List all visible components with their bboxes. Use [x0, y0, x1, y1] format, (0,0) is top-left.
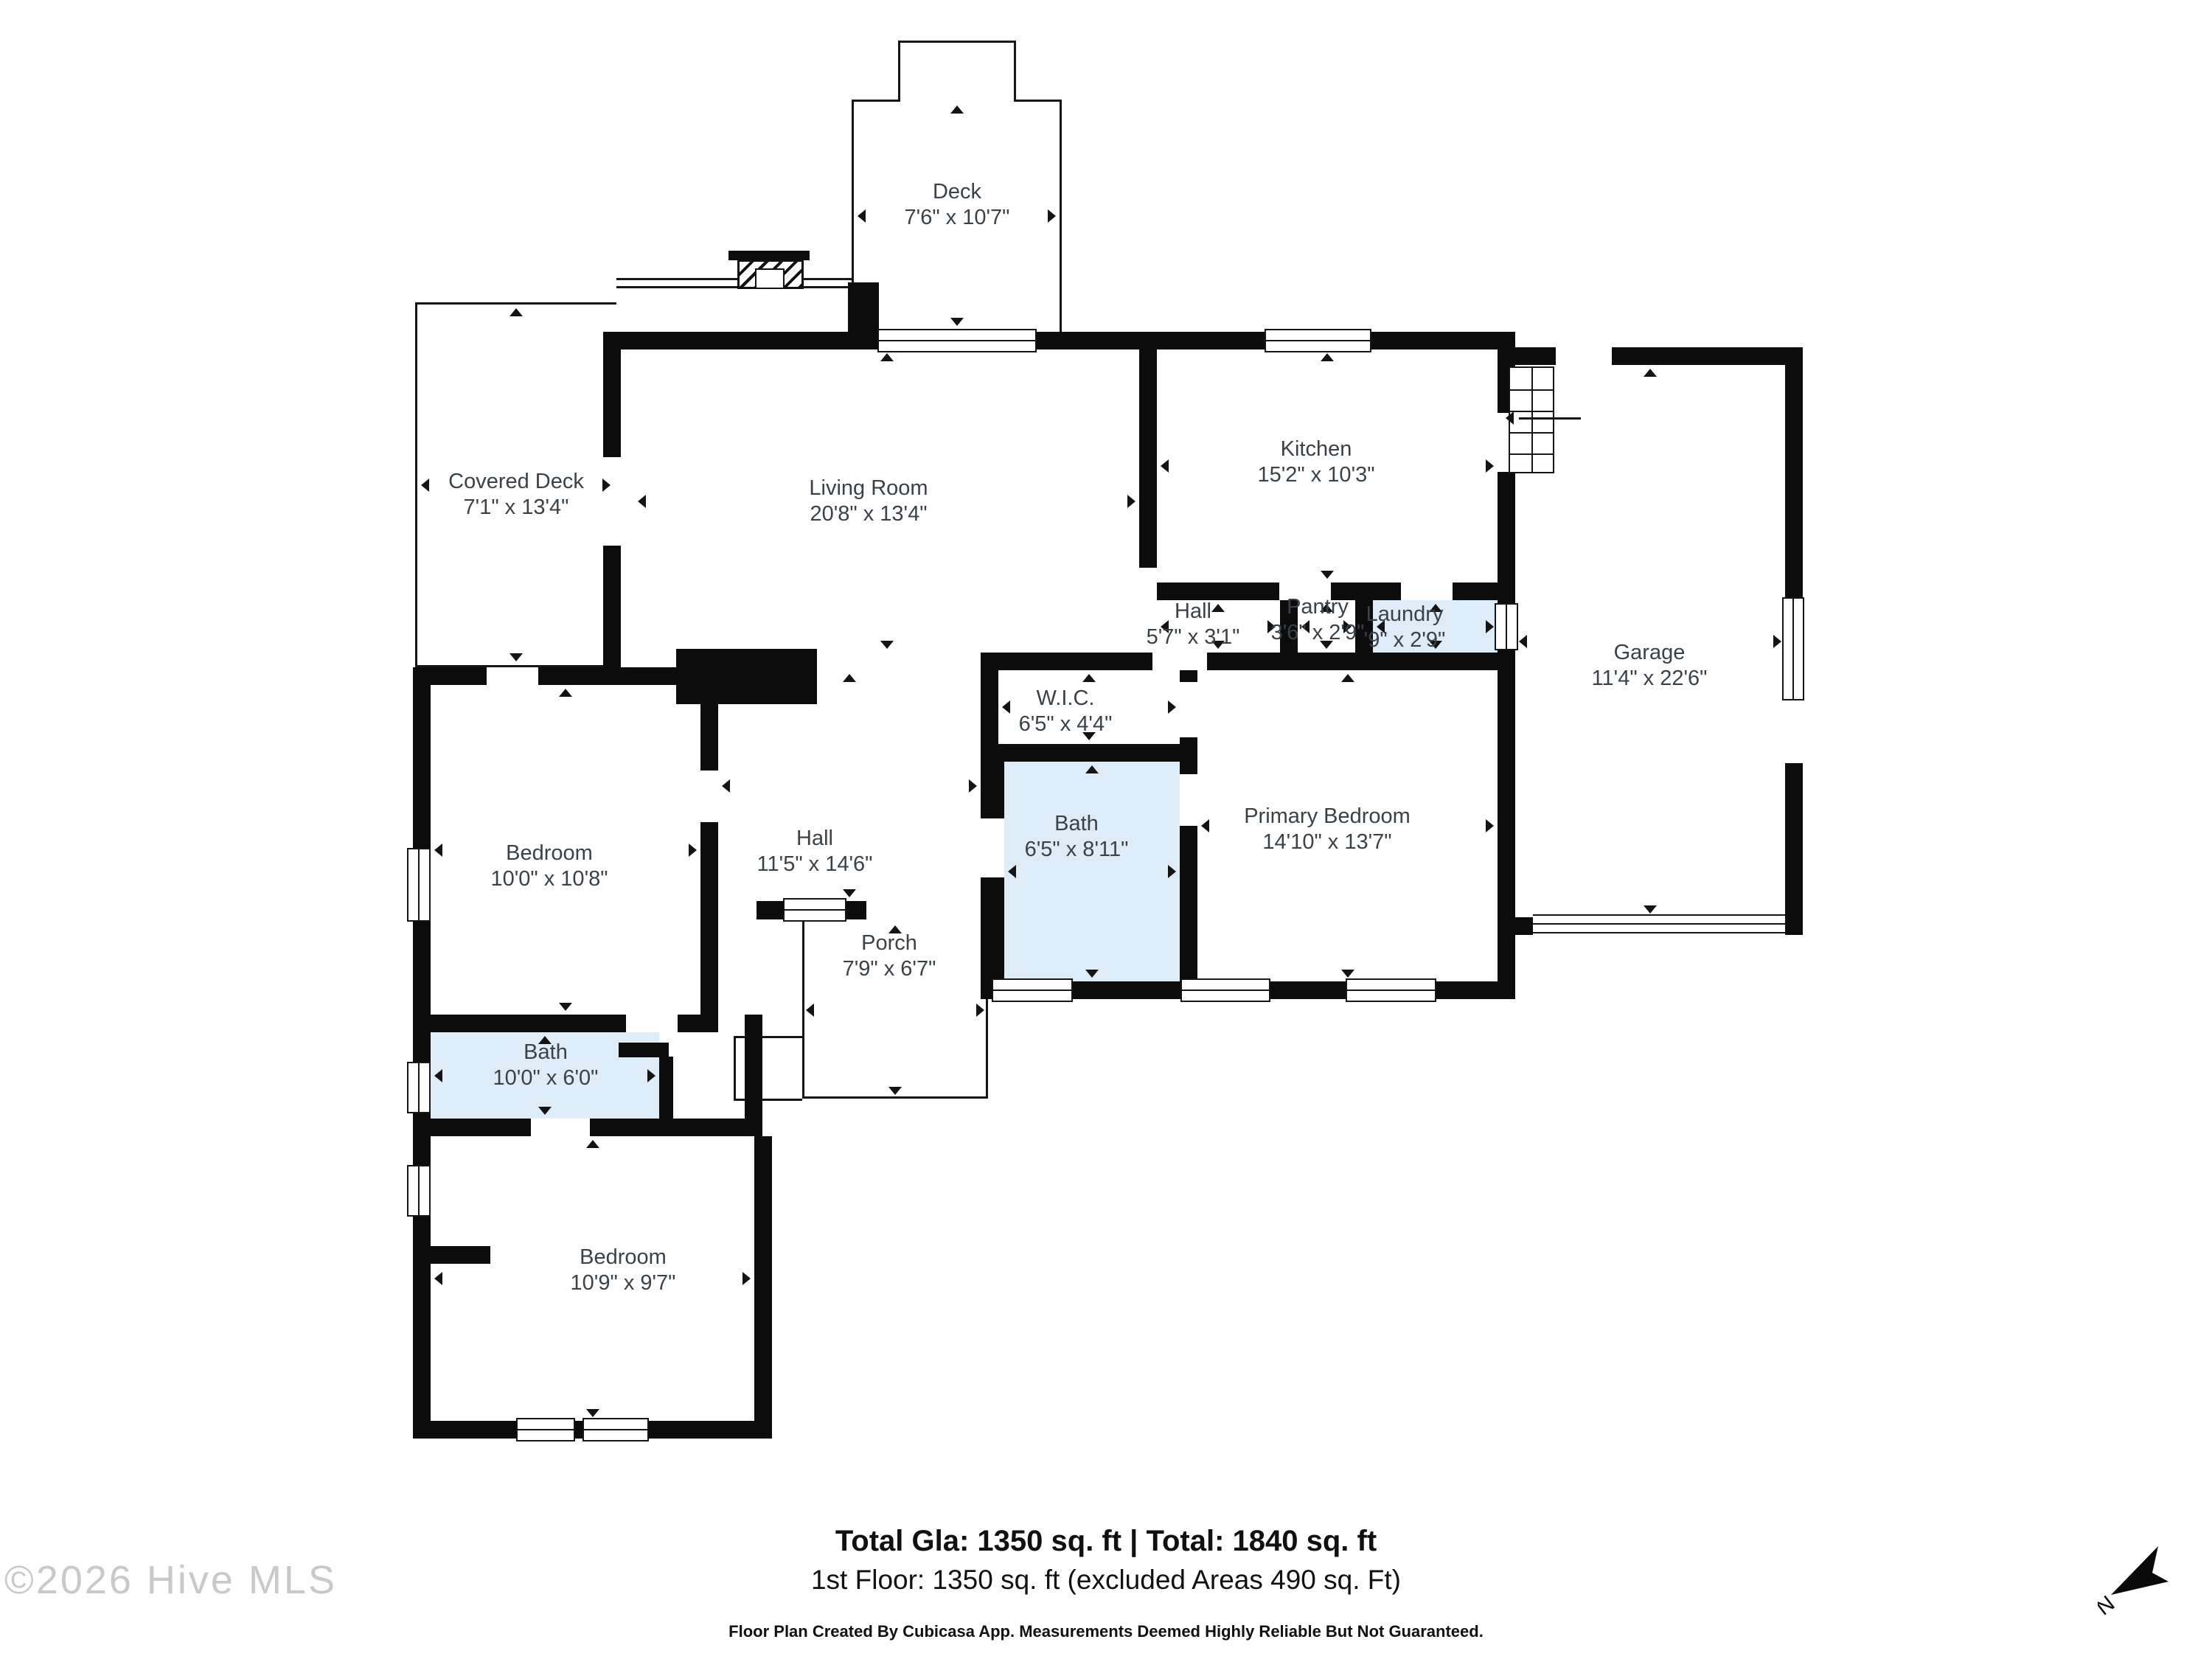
mls-watermark: ©2026 Hive MLS	[4, 1557, 337, 1603]
measure-arrow-down	[1644, 905, 1657, 914]
stair-rail	[1531, 368, 1533, 472]
measure-arrow-down	[888, 1087, 902, 1095]
room-dims: 11'4" x 22'6"	[1592, 666, 1708, 692]
window-glass-line	[584, 1429, 647, 1430]
room-label-bedroom-bottom: Bedroom 10'9" x 9'7"	[571, 1245, 676, 1296]
garage-side-window	[1782, 597, 1804, 700]
wall-segment	[413, 1119, 531, 1136]
room-dims: 7'6" x 10'7"	[905, 205, 1010, 231]
floor-plan-canvas: Deck 7'6" x 10'7" Covered Deck 7'1" x 13…	[0, 0, 2212, 1659]
wall-segment	[619, 1043, 669, 1057]
measure-arrow-right	[602, 479, 611, 492]
wall-segment	[1785, 917, 1803, 935]
wall-segment	[1139, 349, 1157, 568]
room-name: Bedroom	[571, 1245, 676, 1270]
measure-arrow-left	[638, 495, 646, 508]
room-label-porch: Porch 7'9" x 6'7"	[843, 931, 936, 982]
measure-arrow-up	[1341, 674, 1354, 682]
wall-segment	[1180, 737, 1197, 774]
measure-arrow-up	[1082, 674, 1096, 682]
measure-arrow-right	[742, 1272, 751, 1285]
room-name: Bath	[1025, 811, 1129, 837]
wall-segment	[981, 653, 998, 744]
measure-arrow-right	[689, 844, 697, 857]
garage-door-symbol	[1533, 914, 1785, 933]
measure-arrow-left	[1201, 819, 1209, 832]
measure-arrow-left	[421, 479, 429, 492]
stairs	[1509, 366, 1554, 473]
window-glass-line	[518, 1429, 574, 1430]
window-glass-line	[785, 909, 845, 911]
window-glass-line	[418, 1063, 420, 1112]
room-name: Bedroom	[490, 841, 608, 866]
measure-arrow-right	[1486, 819, 1494, 832]
wall-segment	[590, 1119, 745, 1136]
measure-arrow-left	[858, 209, 866, 223]
wall-segment	[1453, 582, 1498, 600]
wall-segment	[1612, 347, 1803, 365]
room-name: Living Room	[809, 476, 928, 501]
measure-arrow-right	[1168, 700, 1176, 714]
wall-segment	[1498, 600, 1515, 999]
bedroom-bottom-side-window	[407, 1165, 431, 1217]
measure-arrow-right	[647, 1069, 655, 1082]
room-dims: 15'2" x 10'3"	[1257, 462, 1374, 488]
room-dims: 10'0" x 10'8"	[490, 866, 608, 892]
window-glass-line	[418, 1166, 420, 1215]
slider-door-symbol	[877, 329, 1037, 352]
room-label-garage: Garage 11'4" x 22'6"	[1592, 640, 1708, 692]
measure-arrow-up	[1644, 369, 1657, 377]
wall-segment	[754, 1136, 772, 1439]
room-dims: 10'0" x 6'0"	[493, 1065, 599, 1091]
room-label-laundry: Laundry '9" x 2'9"	[1364, 602, 1446, 653]
wall-segment	[678, 1015, 718, 1032]
north-arrow-icon: N	[2098, 1545, 2194, 1626]
garage-door-line	[1533, 923, 1785, 925]
room-name: Laundry	[1364, 602, 1446, 627]
bedroom-bottom-window-2	[582, 1418, 649, 1441]
wall-segment	[1515, 917, 1533, 935]
deck-opening	[900, 97, 1014, 103]
window-glass-line	[1792, 599, 1794, 699]
wall-segment	[603, 332, 621, 457]
room-name: Deck	[905, 179, 1010, 205]
room-dims: 14'10" x 13'7"	[1244, 829, 1411, 855]
wall-segment	[659, 1057, 673, 1119]
measure-arrow-down	[843, 889, 856, 897]
room-dims: '9" x 2'9"	[1364, 627, 1446, 653]
wall-segment	[1785, 763, 1803, 935]
bath-mid-fill-area	[1004, 762, 1180, 981]
room-label-living-room: Living Room 20'8" x 13'4"	[809, 476, 928, 527]
measure-arrow-down	[1321, 571, 1334, 579]
wall-segment	[1180, 670, 1197, 682]
measure-arrow-down	[586, 1409, 599, 1417]
measure-arrow-up	[1085, 765, 1099, 773]
measure-arrow-right	[976, 1004, 984, 1017]
window-glass-line	[993, 990, 1071, 991]
room-dims: 7'1" x 13'4"	[448, 495, 584, 521]
room-name: Covered Deck	[448, 469, 584, 495]
measure-arrow-left	[434, 844, 442, 857]
wall-segment	[413, 1015, 626, 1032]
room-name: Garage	[1592, 640, 1708, 666]
measure-arrow-up	[1321, 353, 1334, 361]
measure-arrow-left	[1002, 700, 1010, 714]
wall-segment	[616, 332, 877, 349]
wall-segment	[745, 1015, 762, 1136]
measure-arrow-up	[950, 105, 964, 114]
measure-arrow-up	[509, 308, 523, 316]
room-name: Hall	[757, 826, 873, 852]
measure-arrow-right	[1486, 620, 1494, 633]
measure-arrow-up	[559, 689, 572, 697]
room-label-pantry: Pantry 3'6" x 2'9"	[1271, 594, 1365, 646]
wall-segment	[1037, 332, 1265, 349]
chimney-wall	[728, 251, 810, 260]
north-arrow-label: N	[2098, 1591, 2119, 1620]
room-dims: 6'5" x 8'11"	[1025, 837, 1129, 863]
measure-arrow-left	[1519, 635, 1527, 648]
bath-left-window	[407, 1062, 431, 1113]
wall-segment	[700, 667, 718, 771]
room-dims: 6'5" x 4'4"	[1019, 712, 1113, 737]
room-name: Primary Bedroom	[1244, 804, 1411, 829]
measure-arrow-down	[880, 641, 894, 649]
room-name: Bath	[493, 1040, 599, 1065]
measure-arrow-right	[1168, 865, 1176, 878]
measure-arrow-left	[1161, 459, 1169, 473]
room-label-bedroom-left: Bedroom 10'0" x 10'8"	[490, 841, 608, 892]
window-glass-line	[1266, 340, 1370, 341]
wall-segment	[1157, 582, 1279, 600]
wall-segment	[1180, 826, 1197, 999]
stair-direction-arrow	[1506, 411, 1514, 425]
room-label-bath-mid: Bath 6'5" x 8'11"	[1025, 811, 1129, 863]
measure-arrow-right	[969, 779, 977, 793]
measure-arrow-left	[722, 779, 730, 793]
room-dims: 5'7" x 3'1"	[1147, 625, 1240, 650]
room-name: Kitchen	[1257, 437, 1374, 462]
deck-upper-outline	[898, 41, 1016, 102]
wall-segment	[848, 282, 879, 348]
room-name: Porch	[843, 931, 936, 956]
room-name: Hall	[1147, 599, 1240, 625]
measure-arrow-right	[1048, 209, 1056, 223]
wall-segment	[413, 1246, 490, 1264]
hall-porch-window	[783, 898, 846, 922]
wall-segment	[981, 877, 1004, 981]
room-label-wic: W.I.C. 6'5" x 4'4"	[1019, 686, 1113, 737]
primary-window-2	[1346, 978, 1436, 1002]
bath-mid-window	[992, 978, 1073, 1002]
bedroom-bottom-window-1	[516, 1418, 575, 1441]
wall-segment	[413, 667, 431, 1439]
room-name: W.I.C.	[1019, 686, 1113, 712]
measure-arrow-right	[1486, 459, 1494, 473]
room-label-kitchen: Kitchen 15'2" x 10'3"	[1257, 437, 1374, 488]
measure-arrow-down	[538, 1107, 552, 1115]
measure-arrow-down	[1085, 970, 1099, 978]
footer-disclaimer: Floor Plan Created By Cubicasa App. Meas…	[0, 1622, 2212, 1641]
room-dims: 3'6" x 2'9"	[1271, 620, 1365, 646]
laundry-window	[1495, 603, 1518, 650]
disclaimer-text: Floor Plan Created By Cubicasa App. Meas…	[0, 1622, 2212, 1641]
wall-segment	[538, 667, 700, 685]
room-dims: 11'5" x 14'6"	[757, 852, 873, 877]
window-glass-line	[879, 340, 1035, 341]
wall-segment	[1785, 347, 1803, 597]
measure-arrow-down	[559, 1003, 572, 1011]
north-arrow: N	[2098, 1545, 2194, 1630]
deck-rail-line	[616, 278, 852, 288]
wall-segment	[981, 653, 1152, 670]
room-label-hall-small: Hall 5'7" x 3'1"	[1147, 599, 1240, 650]
wall-segment	[1207, 653, 1515, 670]
room-label-covered-deck: Covered Deck 7'1" x 13'4"	[448, 469, 584, 521]
measure-arrow-left	[434, 1069, 442, 1082]
measure-arrow-left	[434, 1272, 442, 1285]
window-glass-line	[1347, 990, 1435, 991]
stair-direction-line	[1519, 417, 1581, 420]
window-glass-line	[1182, 990, 1269, 991]
bedroom-left-window	[407, 848, 431, 922]
wall-segment	[1498, 472, 1515, 600]
room-label-hall-big: Hall 11'5" x 14'6"	[757, 826, 873, 877]
measure-arrow-down	[509, 653, 523, 661]
total-area-text: Total Gla: 1350 sq. ft | Total: 1840 sq.…	[0, 1525, 2212, 1558]
measure-arrow-down	[1341, 970, 1354, 978]
wall-segment	[700, 822, 718, 1032]
room-label-bath-left: Bath 10'0" x 6'0"	[493, 1040, 599, 1091]
fireplace-firebox	[755, 268, 785, 289]
wall-segment	[1371, 332, 1515, 349]
room-label-deck: Deck 7'6" x 10'7"	[905, 179, 1010, 231]
wall-segment	[603, 546, 621, 670]
primary-window-1	[1180, 978, 1270, 1002]
measure-arrow-up	[843, 674, 856, 682]
kitchen-window	[1265, 329, 1371, 352]
measure-arrow-left	[806, 1004, 814, 1017]
room-dims: 10'9" x 9'7"	[571, 1270, 676, 1296]
measure-arrow-right	[1773, 635, 1781, 648]
room-label-primary-bedroom: Primary Bedroom 14'10" x 13'7"	[1244, 804, 1411, 855]
room-dims: 20'8" x 13'4"	[809, 501, 928, 527]
measure-arrow-right	[1127, 495, 1135, 508]
measure-arrow-up	[880, 353, 894, 361]
footer-totals: Total Gla: 1350 sq. ft | Total: 1840 sq.…	[0, 1525, 2212, 1558]
porch-step-outline	[734, 1036, 802, 1101]
room-name: Pantry	[1271, 594, 1365, 620]
window-glass-line	[1506, 605, 1507, 649]
measure-arrow-left	[1008, 865, 1016, 878]
wall-segment	[1515, 347, 1556, 365]
room-dims: 7'9" x 6'7"	[843, 956, 936, 982]
measure-arrow-down	[950, 318, 964, 326]
wall-segment	[1004, 744, 1197, 762]
measure-arrow-up	[586, 1140, 599, 1148]
window-glass-line	[418, 849, 420, 920]
wall-segment	[981, 744, 1004, 818]
